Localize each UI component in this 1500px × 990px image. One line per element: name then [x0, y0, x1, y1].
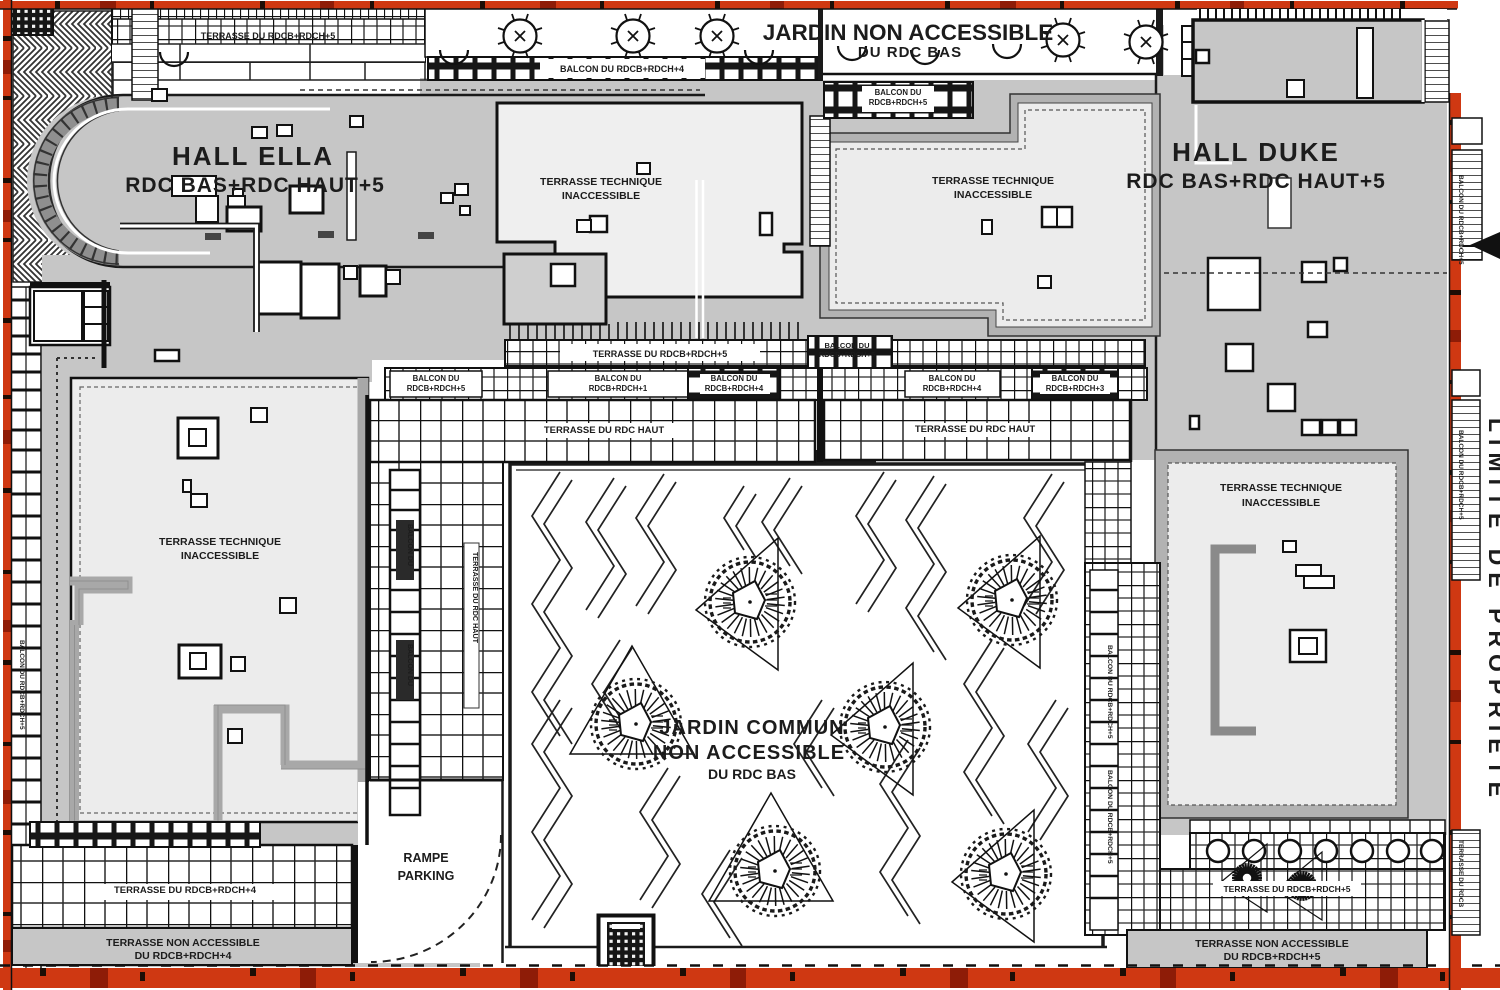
svg-text:TERRASSE TECHNIQUE: TERRASSE TECHNIQUE — [159, 536, 281, 548]
svg-text:TERRASSE DU RDCB+RDCH+5: TERRASSE DU RDCB+RDCH+5 — [593, 349, 728, 359]
svg-text:INACCESSIBLE: INACCESSIBLE — [1242, 497, 1320, 509]
svg-text:TERRASSE DU RDC HAUT: TERRASSE DU RDC HAUT — [915, 424, 1036, 435]
svg-text:TERRASSE DU RDC HAUT: TERRASSE DU RDC HAUT — [471, 552, 480, 644]
svg-text:RDCB+RDCH+5: RDCB+RDCH+5 — [869, 98, 928, 107]
svg-text:HALL ELLA: HALL ELLA — [172, 141, 334, 171]
svg-text:RAMPE: RAMPE — [403, 851, 448, 865]
svg-text:BALCON DU RDCB+RDCH+5: BALCON DU RDCB+RDCH+5 — [1457, 175, 1464, 265]
svg-text:JARDIN COMMUN: JARDIN COMMUN — [659, 717, 844, 739]
svg-text:RDCB+RDCH+3: RDCB+RDCH+3 — [1046, 384, 1105, 393]
svg-text:DU RDCB+RDCH+5: DU RDCB+RDCH+5 — [1224, 951, 1321, 963]
svg-text:BALCON DU RDCB+RDCH+5: BALCON DU RDCB+RDCH+5 — [18, 640, 25, 730]
svg-text:BALCON DU RDCB+RDCH+5: BALCON DU RDCB+RDCH+5 — [1106, 645, 1113, 739]
svg-text:BALCON DU RDCB+RDCH+4: BALCON DU RDCB+RDCH+4 — [560, 64, 684, 74]
svg-text:RDC BAS+RDC HAUT+5: RDC BAS+RDC HAUT+5 — [1126, 170, 1386, 193]
svg-text:TERRASSE TECHNIQUE: TERRASSE TECHNIQUE — [540, 176, 662, 188]
svg-text:TERRASSE DU RDCB: TERRASSE DU RDCB — [1457, 840, 1464, 907]
svg-text:TERRASSE DU RDC HAUT: TERRASSE DU RDC HAUT — [544, 425, 665, 436]
svg-text:TERRASSE NON ACCESSIBLE: TERRASSE NON ACCESSIBLE — [106, 937, 260, 949]
svg-text:TERRASSE TECHNIQUE: TERRASSE TECHNIQUE — [932, 175, 1054, 187]
svg-text:INACCESSIBLE: INACCESSIBLE — [562, 190, 640, 202]
svg-text:RDCB+RDCH+4: RDCB+RDCH+4 — [923, 384, 982, 393]
svg-text:BALCON DU: BALCON DU — [595, 374, 642, 383]
svg-text:BALCON DU: BALCON DU — [406, 524, 413, 566]
svg-text:BALCON DU: BALCON DU — [711, 374, 758, 383]
svg-text:INACCESSIBLE: INACCESSIBLE — [181, 550, 259, 562]
svg-text:RDC BAS+RDC HAUT+5: RDC BAS+RDC HAUT+5 — [125, 174, 385, 197]
svg-text:NON ACCESSIBLE: NON ACCESSIBLE — [653, 742, 845, 764]
svg-text:RDCB+RDCH+4: RDCB+RDCH+4 — [705, 384, 764, 393]
svg-text:BALCON DU: BALCON DU — [1052, 374, 1099, 383]
svg-text:DU RDC BAS: DU RDC BAS — [708, 766, 796, 782]
svg-text:BALCON DU: BALCON DU — [413, 374, 460, 383]
svg-text:INACCESSIBLE: INACCESSIBLE — [954, 189, 1032, 201]
svg-text:LIMITE DE PROPRIETE: LIMITE DE PROPRIETE — [1484, 418, 1500, 804]
svg-text:TERRASSE DU RDCB+RDCH+5: TERRASSE DU RDCB+RDCH+5 — [201, 31, 336, 41]
svg-text:RDCB+RDCH+5: RDCB+RDCH+5 — [407, 384, 466, 393]
svg-text:TERRASSE DU RDCB+RDCH+5: TERRASSE DU RDCB+RDCH+5 — [1223, 884, 1350, 894]
svg-text:BALCON DU: BALCON DU — [406, 644, 413, 686]
svg-text:BALCON DU: BALCON DU — [929, 374, 976, 383]
svg-text:HALL DUKE: HALL DUKE — [1172, 137, 1340, 167]
svg-text:PARKING: PARKING — [398, 869, 455, 883]
svg-text:TERRASSE DU RDCB+RDCH+4: TERRASSE DU RDCB+RDCH+4 — [114, 885, 257, 896]
svg-text:BALCON DU: BALCON DU — [875, 88, 922, 97]
svg-text:RDCB+RDCH+1: RDCB+RDCH+1 — [589, 384, 648, 393]
svg-text:TERRASSE TECHNIQUE: TERRASSE TECHNIQUE — [1220, 482, 1342, 494]
svg-text:RDCB+RDCH+5: RDCB+RDCH+5 — [819, 350, 875, 359]
svg-text:BALCON DU RDCB+RDCH+5: BALCON DU RDCB+RDCH+5 — [1457, 430, 1464, 520]
svg-text:BALCON DU RDCB+RDCH+5: BALCON DU RDCB+RDCH+5 — [1106, 770, 1113, 864]
svg-text:JARDIN NON ACCESSIBLE: JARDIN NON ACCESSIBLE — [763, 20, 1053, 45]
svg-text:DU RDCB+RDCH+4: DU RDCB+RDCH+4 — [135, 950, 232, 962]
svg-text:DU RDC BAS: DU RDC BAS — [858, 44, 962, 61]
svg-text:TERRASSE NON ACCESSIBLE: TERRASSE NON ACCESSIBLE — [1195, 938, 1349, 950]
svg-text:BALCON DU: BALCON DU — [825, 341, 870, 350]
